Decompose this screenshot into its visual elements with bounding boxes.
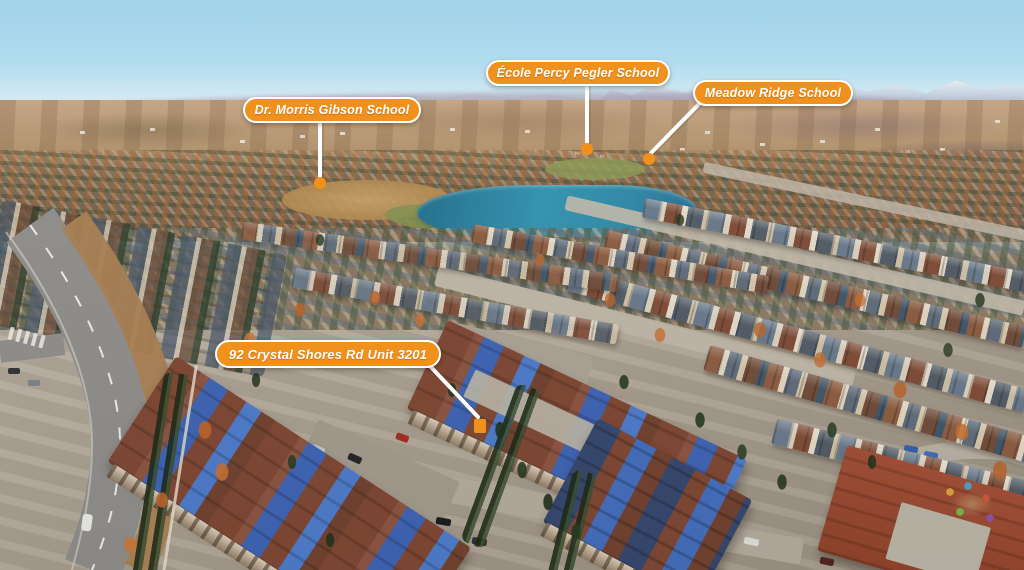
- school-label-text: Dr. Morris Gibson School: [255, 103, 410, 117]
- school-label-dr-morris-gibson: Dr. Morris Gibson School: [243, 97, 421, 123]
- leader-line-address: [430, 366, 478, 417]
- school-marker-dot-gibson: [314, 177, 326, 189]
- school-label-text: École Percy Pegler School: [497, 66, 660, 80]
- school-label-meadow-ridge: Meadow Ridge School: [693, 80, 853, 106]
- property-address-text: 92 Crystal Shores Rd Unit 3201: [229, 347, 427, 362]
- property-address-label: 92 Crystal Shores Rd Unit 3201: [215, 340, 441, 368]
- property-marker-square: [474, 419, 486, 433]
- school-marker-dot-meadow: [643, 153, 655, 165]
- school-label-ecole-percy-pegler: École Percy Pegler School: [486, 60, 670, 86]
- school-marker-dot-pegler: [581, 143, 593, 155]
- leader-line-meadow: [651, 104, 699, 153]
- aerial-photo: Dr. Morris Gibson School École Percy Peg…: [0, 0, 1024, 570]
- school-label-text: Meadow Ridge School: [705, 86, 841, 100]
